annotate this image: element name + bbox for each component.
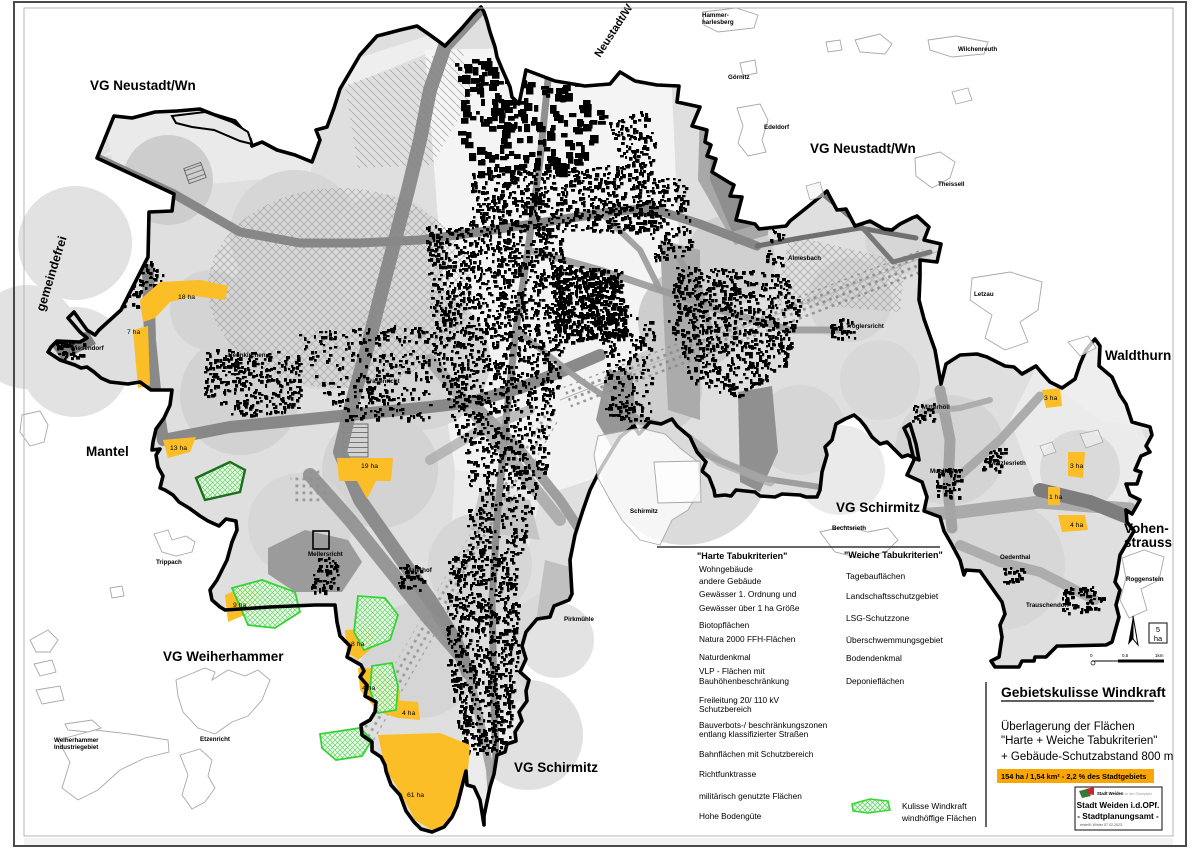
svg-text:Weiherhammer: Weiherhammer bbox=[54, 737, 99, 744]
svg-text:18 ha: 18 ha bbox=[178, 294, 195, 301]
svg-text:andere Gebäude: andere Gebäude bbox=[699, 576, 762, 586]
svg-text:VG Weiherhammer: VG Weiherhammer bbox=[163, 649, 284, 664]
svg-text:"Harte Tabukriterien": "Harte Tabukriterien" bbox=[697, 551, 787, 561]
svg-text:7 ha: 7 ha bbox=[127, 329, 140, 336]
svg-text:Trauschendorf: Trauschendorf bbox=[1026, 602, 1070, 609]
svg-text:LSG-Schutzzone: LSG-Schutzzone bbox=[846, 613, 910, 623]
svg-text:VLP - Flächen mit: VLP - Flächen mit bbox=[699, 666, 765, 676]
svg-text:Bauhöhenbeschränkung: Bauhöhenbeschränkung bbox=[699, 676, 789, 686]
svg-text:VG Schirmitz: VG Schirmitz bbox=[514, 760, 598, 775]
svg-text:Biotopflächen: Biotopflächen bbox=[699, 620, 750, 630]
svg-text:Deponieflächen: Deponieflächen bbox=[846, 676, 905, 686]
svg-text:Trippach: Trippach bbox=[156, 559, 182, 566]
svg-text:1 ha: 1 ha bbox=[1049, 494, 1062, 501]
svg-text:9 ha: 9 ha bbox=[233, 602, 246, 609]
svg-text:Überschwemmungsgebiet: Überschwemmungsgebiet bbox=[846, 635, 943, 645]
svg-text:154 ha / 1,54 km² - 2,2 % de: 154 ha / 1,54 km² - 2,2 % des Stadtgebie… bbox=[1001, 772, 1146, 781]
svg-text:Gewässer über 1 ha Größe: Gewässer über 1 ha Größe bbox=[699, 603, 800, 613]
svg-text:+ Gebäude-Schutzabstand 800 m: + Gebäude-Schutzabstand 800 m bbox=[1001, 751, 1173, 763]
svg-text:Theissell: Theissell bbox=[938, 181, 965, 188]
svg-text:3 ha: 3 ha bbox=[1044, 395, 1057, 402]
svg-text:entlang klassifizierter Straße: entlang klassifizierter Straßen bbox=[699, 729, 809, 739]
svg-text:ha: ha bbox=[1154, 634, 1163, 643]
svg-text:Industriegebiet: Industriegebiet bbox=[54, 744, 98, 751]
svg-text:VG Schirmitz: VG Schirmitz bbox=[836, 500, 920, 515]
svg-text:Etzenricht: Etzenricht bbox=[200, 736, 230, 743]
svg-text:Bahnflächen mit Schutzbereich: Bahnflächen mit Schutzbereich bbox=[699, 749, 814, 759]
svg-text:Hammer-: Hammer- bbox=[702, 12, 729, 19]
svg-text:5: 5 bbox=[1156, 625, 1160, 634]
svg-text:Oedenthal: Oedenthal bbox=[1000, 554, 1031, 561]
svg-text:harlesberg: harlesberg bbox=[702, 19, 734, 26]
svg-text:Gebietskulisse Windkraft: Gebietskulisse Windkraft bbox=[1001, 685, 1166, 700]
svg-text:in der Oberpfalz: in der Oberpfalz bbox=[1125, 792, 1152, 796]
svg-text:- Stadtplanungsamt -: - Stadtplanungsamt - bbox=[1077, 812, 1159, 821]
svg-text:Schutzbereich: Schutzbereich bbox=[699, 704, 752, 714]
svg-text:1km: 1km bbox=[1155, 653, 1164, 658]
svg-text:13 ha: 13 ha bbox=[170, 445, 187, 452]
svg-text:Vohen-: Vohen- bbox=[1124, 521, 1169, 536]
svg-text:Maierhof: Maierhof bbox=[406, 567, 433, 574]
svg-text:strauss: strauss bbox=[1124, 535, 1172, 550]
svg-text:8 ha: 8 ha bbox=[351, 641, 364, 648]
svg-text:Bodendenkmal: Bodendenkmal bbox=[846, 653, 902, 663]
svg-text:Tröglersricht: Tröglersricht bbox=[846, 323, 884, 330]
svg-text:4 ha: 4 ha bbox=[362, 685, 375, 692]
svg-text:Mellersricht: Mellersricht bbox=[308, 551, 343, 558]
svg-text:Hohe Bodengüte: Hohe Bodengüte bbox=[699, 811, 762, 821]
svg-text:"Harte + Weiche Tabukriterien": "Harte + Weiche Tabukriterien" bbox=[1001, 735, 1157, 747]
svg-text:Almesbach: Almesbach bbox=[788, 255, 821, 262]
svg-text:Wilchenreuth: Wilchenreuth bbox=[958, 46, 997, 53]
svg-text:4 ha: 4 ha bbox=[402, 710, 415, 717]
svg-text:4 ha: 4 ha bbox=[1070, 522, 1083, 529]
svg-text:Schirmitz: Schirmitz bbox=[630, 508, 658, 515]
svg-text:Mitterhöll: Mitterhöll bbox=[922, 404, 950, 411]
svg-text:Letzau: Letzau bbox=[974, 291, 994, 298]
svg-text:Edeldorf: Edeldorf bbox=[764, 124, 790, 131]
svg-text:militärisch genutzte Flächen: militärisch genutzte Flächen bbox=[699, 791, 802, 801]
svg-text:VG Neustadt/Wn: VG Neustadt/Wn bbox=[810, 141, 916, 156]
svg-text:windhöffige Flächen: windhöffige Flächen bbox=[901, 813, 977, 823]
svg-text:Muglhof: Muglhof bbox=[930, 468, 955, 475]
svg-text:Stadt Weiden i.d.OPf.: Stadt Weiden i.d.OPf. bbox=[1077, 801, 1160, 810]
svg-text:VG Neustadt/Wn: VG Neustadt/Wn bbox=[90, 78, 196, 93]
svg-text:Wiesendorf: Wiesendorf bbox=[70, 345, 105, 352]
svg-text:Gewässer 1. Ordnung und: Gewässer 1. Ordnung und bbox=[699, 589, 797, 599]
svg-text:Stadt Weiden: Stadt Weiden bbox=[1097, 791, 1124, 796]
svg-text:Frasenricht: Frasenricht bbox=[366, 378, 400, 385]
svg-text:Tagebauflächen: Tagebauflächen bbox=[846, 571, 905, 581]
svg-text:61 ha: 61 ha bbox=[407, 792, 424, 799]
svg-text:0,5: 0,5 bbox=[1122, 653, 1129, 658]
svg-text:Pirkmühle: Pirkmühle bbox=[564, 616, 594, 623]
svg-text:Mantel: Mantel bbox=[86, 444, 129, 459]
svg-text:Richtfunktrasse: Richtfunktrasse bbox=[699, 769, 757, 779]
svg-text:Landschaftsschutzgebiet: Landschaftsschutzgebiet bbox=[846, 591, 939, 601]
svg-text:erstellt: Winter 07.02.2023: erstellt: Winter 07.02.2023 bbox=[1080, 823, 1122, 827]
svg-text:Naturdenkmal: Naturdenkmal bbox=[699, 652, 751, 662]
svg-text:Neunkirchen: Neunkirchen bbox=[228, 352, 266, 359]
svg-text:Wohngebäude: Wohngebäude bbox=[699, 564, 753, 574]
svg-text:"Weiche Tabukriterien": "Weiche Tabukriterien" bbox=[844, 550, 943, 560]
svg-text:Kulisse Windkraft: Kulisse Windkraft bbox=[902, 801, 967, 811]
svg-text:Roggenstein: Roggenstein bbox=[1126, 576, 1164, 583]
svg-text:Überlagerung der Flächen: Überlagerung der Flächen bbox=[1001, 721, 1135, 733]
svg-text:19 ha: 19 ha bbox=[361, 463, 378, 470]
svg-text:Bechtsrieth: Bechtsrieth bbox=[832, 525, 866, 532]
svg-text:3 ha: 3 ha bbox=[1070, 463, 1083, 470]
svg-text:Waldthurn: Waldthurn bbox=[1105, 348, 1171, 363]
svg-text:Natura 2000 FFH-Flächen: Natura 2000 FFH-Flächen bbox=[699, 634, 796, 644]
svg-text:Matzlesrieth: Matzlesrieth bbox=[990, 460, 1026, 467]
svg-text:Görnitz: Görnitz bbox=[728, 74, 750, 81]
